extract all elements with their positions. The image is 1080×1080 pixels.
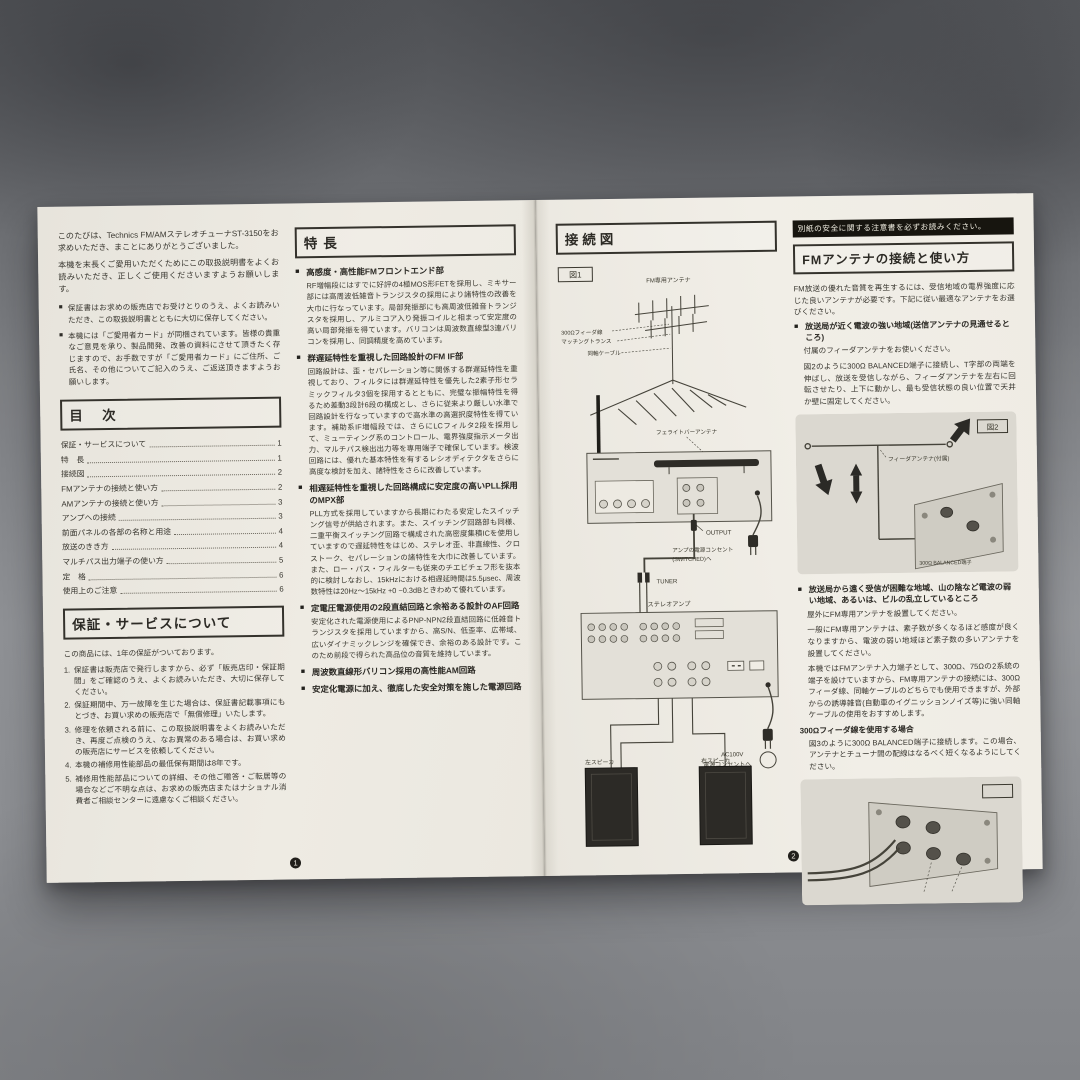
yagi-antenna-icon xyxy=(635,295,710,385)
fig1-label: 図1 xyxy=(569,270,582,279)
warranty-title: 保証・サービスについて xyxy=(63,606,284,640)
feature-section: 群遅延特性を重視した回路設計のFM IF部 回路設計は、歪・セパレーション等に関… xyxy=(296,350,519,478)
toc-item: 保証・サービスについて1 xyxy=(61,437,282,451)
figure-3 xyxy=(800,777,1023,911)
amplifier-rear-panel xyxy=(581,611,778,700)
page-1: このたびは、Technics FM/AMステレオチューナST-3150をお求めい… xyxy=(37,200,544,883)
output-label: OUTPUT xyxy=(706,529,732,536)
tuner-rear-panel xyxy=(587,451,772,524)
figure-2: 図2 フィーダアンテナ(付属) xyxy=(795,411,1018,579)
dot-leader xyxy=(167,561,276,565)
feature-section: 定電圧電源使用の2段直結回路と余裕ある設計のAF回路 安定化された電源使用による… xyxy=(300,600,522,661)
warranty-item: 4.本機の補修用性能部品の最低保有期間は8年です。 xyxy=(65,757,286,771)
fm-heading-2: 放送局から遠く受信が困難な地域、山の陰など電波の弱い地域、あるいは、ビルの乱立し… xyxy=(798,582,1019,607)
dot-leader xyxy=(87,473,274,478)
left-speaker-icon xyxy=(585,768,638,847)
toc-item: 定 格6 xyxy=(62,568,283,582)
fm-antenna-title: FMアンテナの接続と使い方 xyxy=(793,241,1014,274)
safety-notice-banner: 別紙の安全に関する注意書を必ずお読みください。 xyxy=(793,217,1014,237)
dot-leader xyxy=(162,502,276,506)
tuner-jack-label: TUNER xyxy=(657,579,678,585)
fm-heading-3: 300Ωフィーダ線を使用する場合 xyxy=(800,722,1021,736)
toc-item: 特 長1 xyxy=(61,451,282,465)
toc-item: 前面パネルの各部の名称と用途4 xyxy=(62,524,283,538)
warranty-item: 1.保証書は販売店で発行しますから、必ず「販売店印・保証期間」をご確認のうえ、よ… xyxy=(64,661,285,697)
connection-diagram-figure1: 図1 FM専用アンテナ 300Ω xyxy=(556,261,782,849)
switched-outlet-label-1: アンプの電源コンセント xyxy=(672,545,733,554)
connection-title: 接続図 xyxy=(556,221,777,255)
fm-antenna-column: 別紙の安全に関する注意書を必ずお読みください。 FMアンテナの接続と使い方 FM… xyxy=(793,217,1024,916)
matching-transformer-label: マッチングトランス xyxy=(561,337,612,346)
connection-diagram-column: 接続図 図1 FM専用アンテナ xyxy=(556,221,787,920)
features-title: 特長 xyxy=(295,224,516,258)
fm-paragraph-7: 図3のように300Ω BALANCED端子に接続します。この場合、アンテナとチュ… xyxy=(800,735,1021,773)
page-number-2: 2 xyxy=(788,850,799,861)
warranty-item: 5.補修用性能部品についての詳細、その他ご贈答・ご転居等の場合などご不明な点は、… xyxy=(65,770,286,806)
left-column: このたびは、Technics FM/AMステレオチューナST-3150をお求めい… xyxy=(58,228,287,809)
right-speaker-icon xyxy=(699,766,752,845)
ferrite-bar-label: フェライトバーアンテナ xyxy=(656,429,718,437)
fm-heading-1: 放送局が近く電波の強い地域(送信アンテナの見通せるところ) xyxy=(794,319,1015,344)
dot-leader xyxy=(149,444,274,448)
toc-item: 接続図2 xyxy=(61,466,282,480)
dot-leader xyxy=(161,488,275,492)
feeder-wire-label: 300Ωフィーダ線 xyxy=(561,328,603,337)
intro-bullet-1: 保証書はお求めの販売店でお受けとりのうえ、よくお読みいただき、この取扱説明書とと… xyxy=(59,300,280,326)
feature-section: 周波数直線形バリコン採用の高性能AM回路 xyxy=(301,664,522,678)
warranty-item: 2.保証期間中、万一故障を生じた場合は、保証書記載事項にもとづき、お買い求めの販… xyxy=(64,697,285,722)
photo-scene: このたびは、Technics FM/AMステレオチューナST-3150をお求めい… xyxy=(0,0,1080,1080)
toc-item: アンプへの接続3 xyxy=(62,510,283,524)
right-speaker-label: 右スピーカ xyxy=(701,756,730,764)
fm-antenna-label: FM専用アンテナ xyxy=(646,276,691,285)
feature-section: 安定化電源に加え、徹底した安全対策を施した電源回路 xyxy=(301,681,522,695)
warranty-intro: この商品には、1年の保証がついております。 xyxy=(64,646,285,661)
fm-paragraph-4: 屋外にFM専用アンテナを設置してください。 xyxy=(798,606,1019,621)
dot-leader xyxy=(87,458,274,463)
ac-outlet-icon xyxy=(760,752,776,768)
fm-paragraph-2: 付属のフィーダアンテナをお使いください。 xyxy=(794,343,1015,358)
toc-item: FMアンテナの接続と使い方2 xyxy=(61,481,282,495)
fm-paragraph-6: 本機ではFMアンテナ入力端子として、300Ω、75Ωの2系統の端子を設けています… xyxy=(799,660,1021,721)
dot-leader xyxy=(119,517,276,521)
feature-section: 高感度・高性能FMフロントエンド部 RF増幅段にはすでに好評の4極MOS形FET… xyxy=(295,264,517,347)
features-column: 特長 高感度・高性能FMフロントエンド部 RF増幅段にはすでに好評の4極MOS形… xyxy=(295,224,524,805)
stereo-amp-label: ステレオアンプ xyxy=(647,601,691,609)
fm-paragraph-1: FM放送の優れた音質を再生するには、受信地域の電界強度に応じた良いアンテナが必要… xyxy=(793,280,1014,318)
toc-title: 目 次 xyxy=(60,397,281,431)
fm-paragraph-3: 図2のように300Ω BALANCED端子に接続し、T字部の両端を伸ばし、放送を… xyxy=(795,358,1017,407)
page-2: 接続図 図1 FM専用アンテナ xyxy=(535,193,1042,876)
toc-list: 保証・サービスについて1 特 長1 接続図2 FMアンテナの接続と使い方2 AM… xyxy=(61,437,284,597)
dot-leader xyxy=(174,531,276,534)
switched-outlet-label-2: (SWITCHED)へ xyxy=(672,557,712,564)
dot-leader xyxy=(112,546,276,550)
speaker-wire-left xyxy=(610,698,659,768)
intro-paragraph-1: このたびは、Technics FM/AMステレオチューナST-3150をお求めい… xyxy=(58,228,279,256)
intro-paragraph-2: 本機を末長くご愛用いただくためにこの取扱説明書をよくお読みいただき、正しくご使用… xyxy=(58,256,279,296)
fm-paragraph-5: 一般にFM専用アンテナは、素子数が多くなるほど感度が良くなりますから、電波の弱い… xyxy=(798,622,1019,660)
speaker-wire-left2 xyxy=(620,698,673,768)
warranty-item: 3.修理を依頼される前に、この取扱説明書をよくお読みいただき、再度ご点検のうえ、… xyxy=(65,721,286,757)
feature-section: 相遅延特性を重視した回路構成に安定度の高いPLL採用のMPX部 PLL方式を採用… xyxy=(298,481,521,598)
toc-item: 放送のきき方4 xyxy=(62,539,283,553)
intro-bullet-2: 本機には「ご愛用者カード」が同梱されています。皆様の貴重なご意見を承り、製品開発… xyxy=(59,327,281,388)
dot-leader xyxy=(89,575,276,580)
toc-item: AMアンテナの接続と使い方3 xyxy=(61,495,282,509)
coax-cable-label: 同軸ケーブル xyxy=(587,349,621,357)
toc-item: マルチパス出力端子の使い方5 xyxy=(62,554,283,568)
page-number-1: 1 xyxy=(290,857,301,868)
fig2-label: 図2 xyxy=(987,423,999,432)
toc-item: 使用上のご注意6 xyxy=(63,583,284,597)
left-speaker-label: 左スピーカ xyxy=(585,758,614,766)
roof-icon xyxy=(590,379,747,425)
dot-leader xyxy=(120,590,276,594)
manual-booklet: このたびは、Technics FM/AMステレオチューナST-3150をお求めい… xyxy=(37,193,1042,883)
